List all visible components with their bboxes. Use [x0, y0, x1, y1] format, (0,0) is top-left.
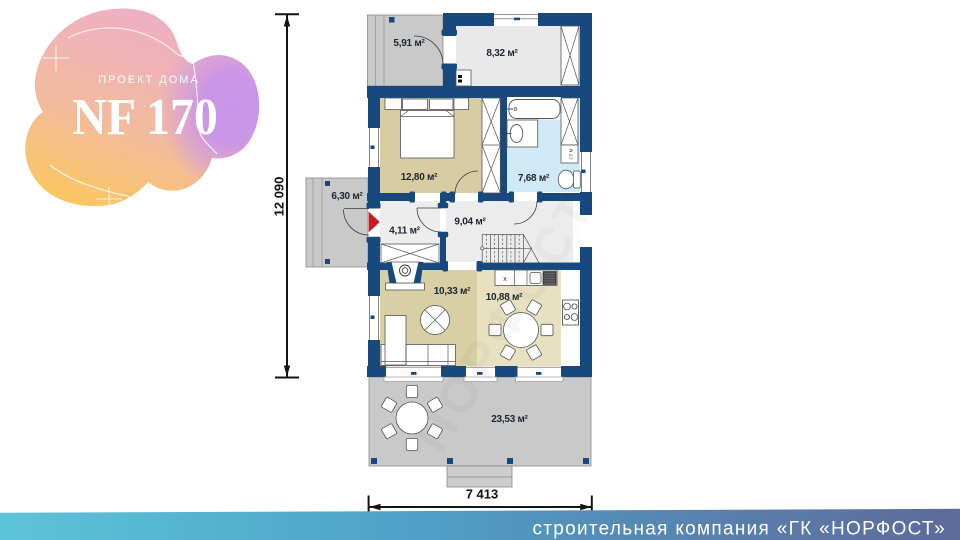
svg-text:12 090: 12 090	[272, 177, 287, 217]
svg-text:12,80 м²: 12,80 м²	[401, 172, 438, 183]
svg-text:8,32 м²: 8,32 м²	[486, 48, 518, 59]
svg-text:5,91 м²: 5,91 м²	[393, 38, 425, 49]
svg-text:9,04 м²: 9,04 м²	[454, 217, 486, 228]
svg-text:10,88 м²: 10,88 м²	[486, 292, 523, 303]
svg-text:СТ М: СТ М	[569, 148, 574, 159]
svg-text:7,68 м²: 7,68 м²	[518, 173, 550, 184]
svg-text:NF 170: NF 170	[72, 87, 218, 145]
svg-text:7 413: 7 413	[466, 487, 499, 502]
svg-text:строительная компания «ГК «НОР: строительная компания «ГК «НОРФОСТ»	[532, 519, 946, 540]
svg-text:23,53 м²: 23,53 м²	[491, 414, 528, 425]
svg-text:10,33 м²: 10,33 м²	[434, 286, 471, 297]
svg-text:ПРОЕКТ ДОМА: ПРОЕКТ ДОМА	[98, 74, 200, 86]
svg-text:4,11 м²: 4,11 м²	[389, 226, 421, 237]
svg-text:6,30 м²: 6,30 м²	[331, 191, 363, 202]
